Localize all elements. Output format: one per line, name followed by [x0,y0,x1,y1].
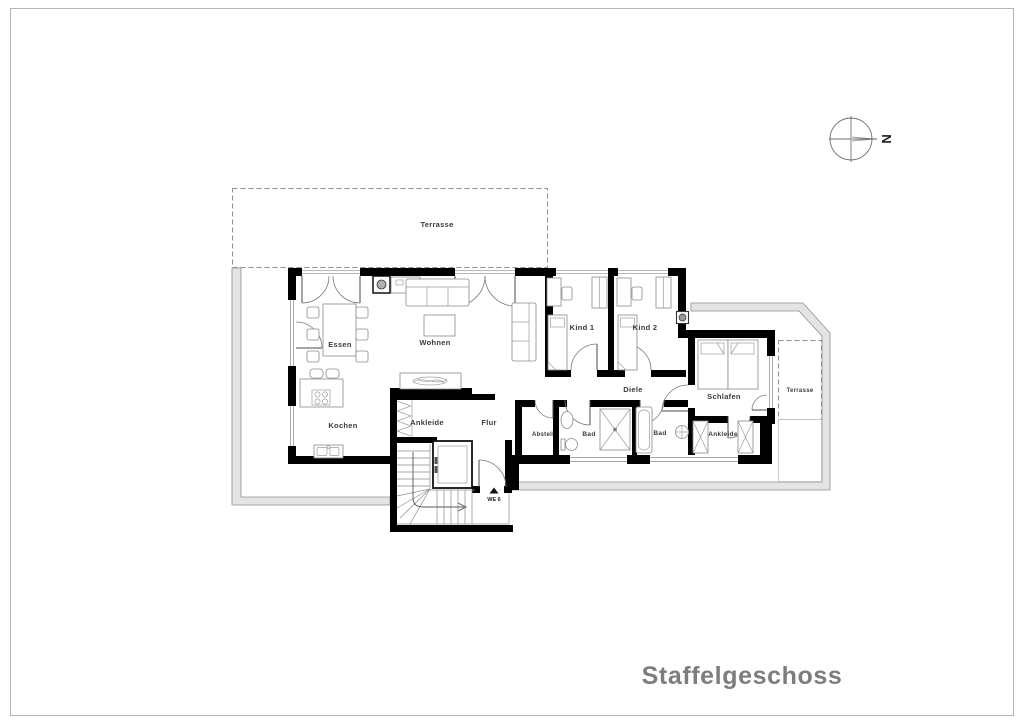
dining-table-group [307,304,368,362]
room-label-terrasse-top: Terrasse [420,220,453,229]
floor-plan-drawing: N [0,0,1024,724]
room-label-flur: Flur [481,418,496,427]
room-label-diele: Diele [623,385,642,394]
room-label-terrasse-east: Terrasse [787,388,814,394]
room-label-abstell: Abstell [532,432,554,438]
room-label-kochen: Kochen [328,421,357,430]
room-label-bad-shower: Bad [582,431,595,438]
entrance-label: WE 6 [487,497,500,503]
desk-chair [562,287,572,300]
floorplan-page: N [0,0,1024,724]
elevator [433,441,472,488]
toilet [561,439,565,450]
terrace-top [233,189,548,268]
sofa [406,279,469,306]
room-label-ankleide-east: Ankleide [708,431,738,438]
room-label-essen: Essen [328,340,352,349]
north-label: N [879,134,894,143]
bar-stool [326,369,339,378]
room-label-ankleide-west: Ankleide [410,418,444,427]
room-label-kind2: Kind 2 [633,323,658,332]
room-label-bad-tub: Bad [653,430,666,437]
sofa-group [406,279,536,361]
desk-chair [632,287,642,300]
roof-area-below-terrace [779,420,822,482]
page-border [11,9,1014,716]
desk [547,278,561,306]
plan-title: Staffelgeschoss [642,662,843,690]
coffee-table [424,315,455,336]
room-label-wohnen: Wohnen [419,338,450,347]
compass-icon: N [829,116,894,162]
room-label-schlafen: Schlafen [707,392,741,401]
room-label-kind1: Kind 1 [570,323,595,332]
side-sofa [512,303,536,361]
kitchen-island [300,379,343,407]
washbasin [561,412,573,429]
desk [617,278,631,306]
double-bed [698,340,758,389]
sideboard-plant [400,373,461,389]
vent-shaft [677,312,689,324]
kitchen-group [300,369,343,458]
bar-stool [310,369,323,378]
terrace-east [779,341,822,420]
bathroom-shower-group [561,409,630,451]
